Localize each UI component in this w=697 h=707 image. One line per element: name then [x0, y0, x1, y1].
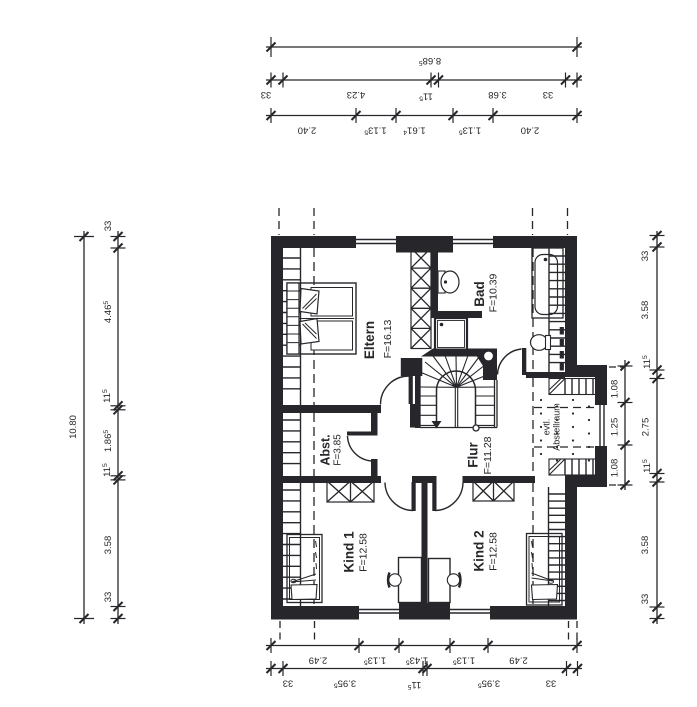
svg-text:33: 33 — [543, 89, 554, 100]
svg-text:F=16.13: F=16.13 — [382, 319, 394, 358]
svg-text:Bad: Bad — [472, 281, 487, 307]
svg-text:F=11.28: F=11.28 — [482, 436, 494, 474]
svg-text:4.23: 4.23 — [347, 89, 366, 100]
svg-text:2.49: 2.49 — [509, 655, 528, 666]
svg-text:3.68: 3.68 — [488, 89, 507, 100]
svg-text:33: 33 — [283, 678, 294, 689]
svg-text:Eltern: Eltern — [362, 321, 377, 359]
svg-text:F=12.58: F=12.58 — [488, 532, 500, 571]
svg-text:1.08: 1.08 — [610, 459, 621, 478]
svg-text:2.75: 2.75 — [641, 418, 652, 437]
svg-text:F=12.58: F=12.58 — [358, 533, 370, 572]
svg-text:evtl.: evtl. — [542, 419, 552, 436]
svg-text:F=3.85: F=3.85 — [333, 434, 344, 466]
svg-text:33: 33 — [103, 592, 114, 603]
svg-text:Abst.: Abst. — [319, 434, 333, 465]
svg-text:F=10.39: F=10.39 — [488, 273, 500, 312]
svg-text:10.80: 10.80 — [68, 415, 79, 439]
svg-text:Abstellraum: Abstellraum — [552, 403, 562, 451]
svg-text:Kind 2: Kind 2 — [472, 530, 487, 571]
svg-text:3.58: 3.58 — [640, 301, 651, 320]
svg-text:1.25: 1.25 — [610, 418, 621, 437]
svg-text:2.40: 2.40 — [521, 125, 540, 136]
svg-text:33: 33 — [261, 89, 272, 100]
svg-text:33: 33 — [640, 251, 651, 262]
svg-text:Kind 1: Kind 1 — [342, 531, 357, 573]
svg-text:33: 33 — [546, 678, 557, 689]
svg-text:Flur: Flur — [466, 442, 481, 468]
svg-text:33: 33 — [640, 594, 651, 605]
svg-text:3.58: 3.58 — [640, 536, 651, 555]
svg-text:3.58: 3.58 — [103, 536, 114, 555]
svg-text:1.08: 1.08 — [610, 380, 621, 399]
svg-text:2.49: 2.49 — [309, 655, 328, 666]
svg-text:2.40: 2.40 — [298, 125, 317, 136]
svg-text:33: 33 — [103, 221, 114, 232]
